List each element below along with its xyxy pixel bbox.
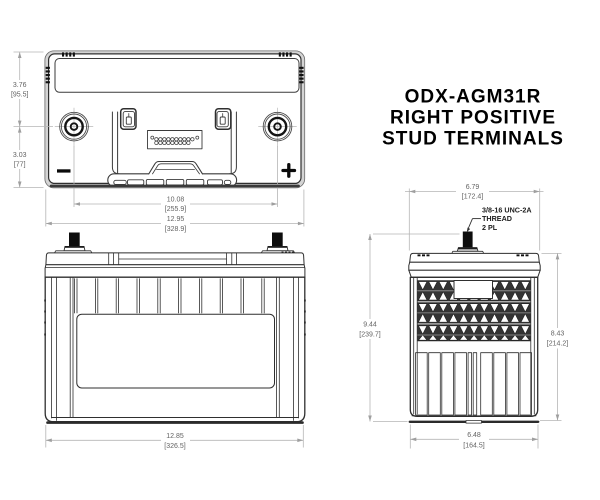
svg-text:2 PL: 2 PL	[482, 223, 498, 232]
svg-text:[255.9]: [255.9]	[165, 206, 186, 213]
svg-text:3.03: 3.03	[13, 152, 27, 159]
svg-text:THREAD: THREAD	[482, 214, 512, 223]
svg-text:[77]: [77]	[14, 162, 26, 169]
svg-text:[214.2]: [214.2]	[547, 340, 568, 347]
svg-text:[172.4]: [172.4]	[462, 194, 483, 201]
svg-text:[164.5]: [164.5]	[463, 442, 484, 449]
svg-text:12.95: 12.95	[167, 216, 185, 223]
svg-text:3/8-16 UNC-2A: 3/8-16 UNC-2A	[482, 206, 532, 215]
svg-text:[328.9]: [328.9]	[165, 226, 186, 233]
svg-text:[326.5]: [326.5]	[164, 443, 185, 450]
svg-text:10.08: 10.08	[167, 197, 185, 204]
svg-text:3.76: 3.76	[13, 82, 27, 89]
svg-text:9.44: 9.44	[363, 322, 377, 329]
svg-text:12.85: 12.85	[166, 433, 184, 440]
svg-text:RIGHT POSITIVE: RIGHT POSITIVE	[390, 108, 556, 129]
svg-text:ODX-AGM31R: ODX-AGM31R	[405, 87, 542, 108]
svg-text:6.48: 6.48	[467, 432, 481, 439]
svg-text:STUD TERMINALS: STUD TERMINALS	[382, 129, 564, 150]
svg-text:[95.5]: [95.5]	[11, 92, 29, 99]
svg-text:6.79: 6.79	[466, 184, 480, 191]
svg-text:[239.7]: [239.7]	[359, 331, 380, 338]
svg-text:8.43: 8.43	[551, 331, 565, 338]
